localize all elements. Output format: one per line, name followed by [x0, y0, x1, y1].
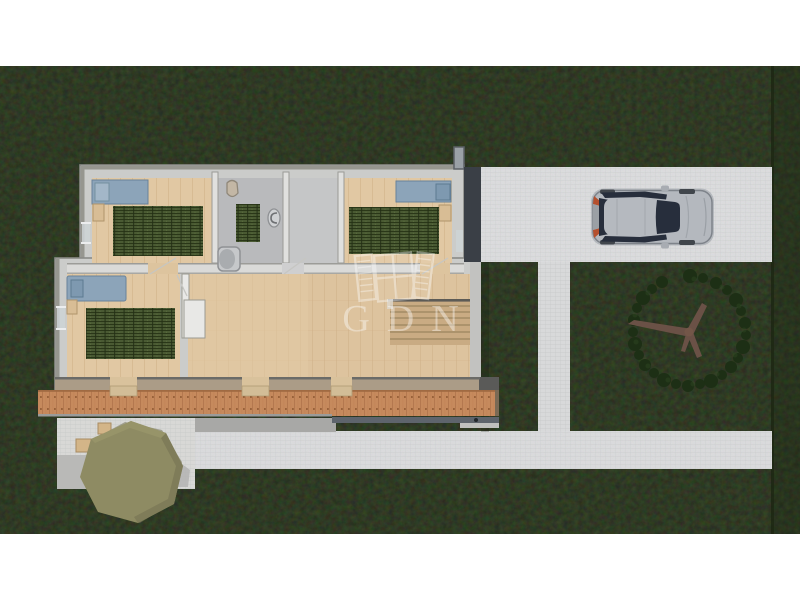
- svg-text:GDN: GDN: [342, 298, 475, 340]
